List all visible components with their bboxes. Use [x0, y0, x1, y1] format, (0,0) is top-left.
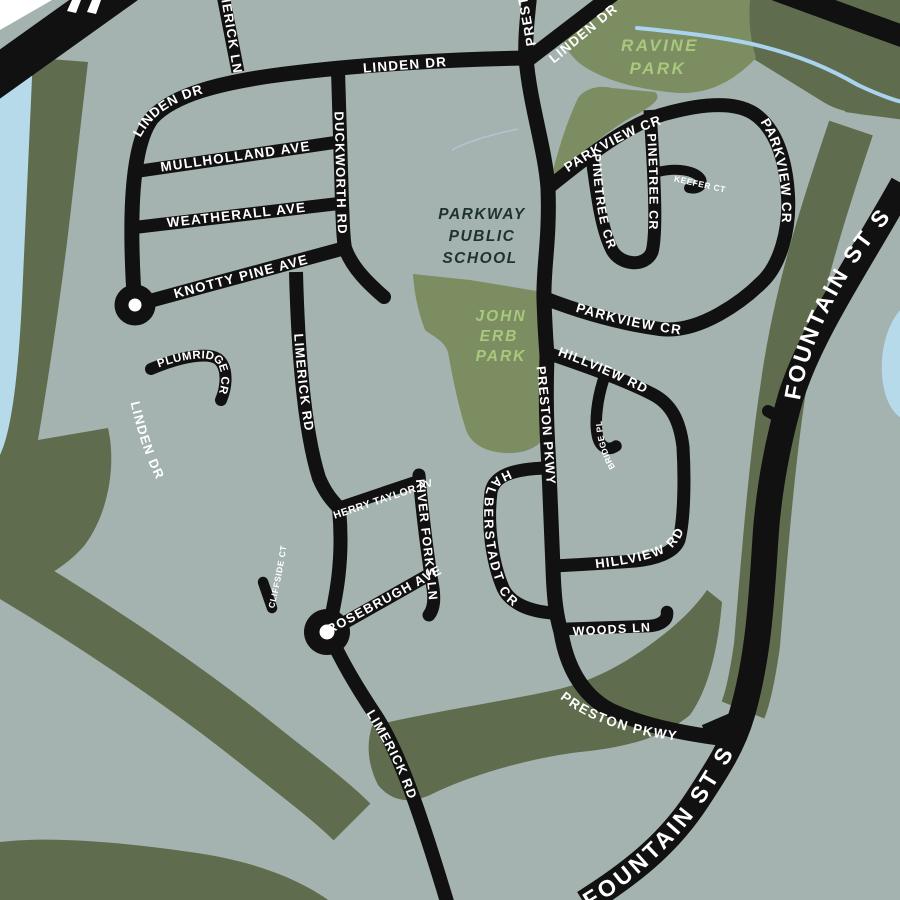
park-label-john-erb-line1: JOHN [475, 308, 526, 325]
map-canvas: LINDEN DR LINDEN DR LINDEN DR LINDEN DR … [0, 0, 900, 900]
park-label-john-erb-line3: PARK [476, 348, 527, 365]
park-label-ravine-line2: PARK [630, 59, 687, 78]
roundabout-linden-knotty-island [129, 299, 142, 312]
park-label-ravine-line1: RAVINE [621, 36, 699, 55]
park-label-john-erb-line2: ERB [480, 328, 519, 345]
school-label-line1: PARKWAY [438, 206, 526, 223]
school-label-line3: SCHOOL [442, 250, 517, 267]
school-label-line2: PUBLIC [449, 228, 516, 245]
street-label-pinetree-right: PINETREE CR [644, 133, 660, 231]
